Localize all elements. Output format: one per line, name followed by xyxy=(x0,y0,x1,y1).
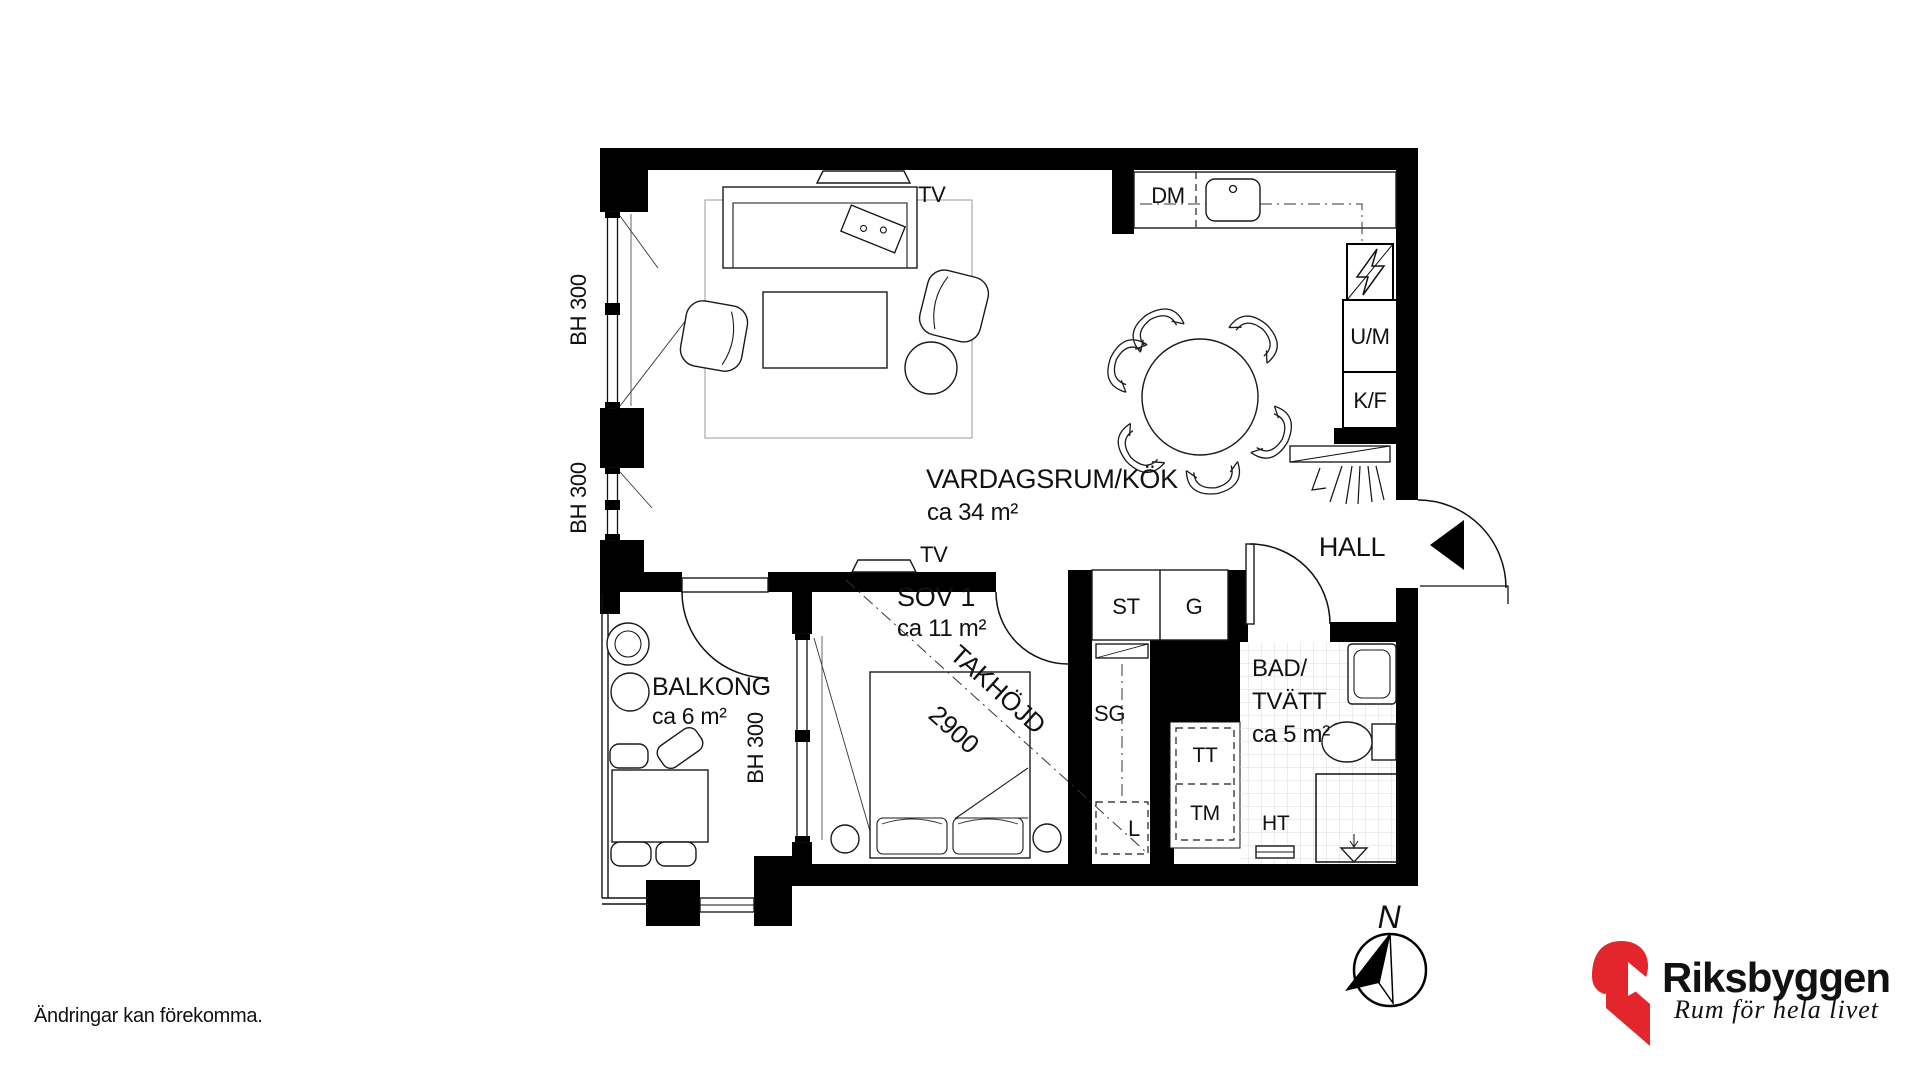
bedroom-area: ca 11 m² xyxy=(897,615,986,642)
balcony-table xyxy=(612,770,708,842)
riksbyggen-logo: Riksbyggen Rum för hela livet xyxy=(1592,941,1890,1046)
logo-tagline: Rum för hela livet xyxy=(1673,995,1879,1024)
logo-brand-text: Riksbyggen xyxy=(1662,954,1890,1001)
tv-wall-bedroom xyxy=(852,560,916,572)
bedroom-door xyxy=(996,592,1068,664)
living-room-furniture: TV xyxy=(678,171,992,438)
laundry-appliances: TT TM xyxy=(1170,722,1240,848)
bathroom-label-2: TVÄTT xyxy=(1252,688,1327,715)
hanger-icon xyxy=(1312,466,1384,504)
bathroom-area: ca 5 m² xyxy=(1252,721,1330,748)
closet-sg-label: SG xyxy=(1094,701,1125,726)
dishwasher-label: DM xyxy=(1151,183,1185,208)
sofa xyxy=(723,187,917,268)
window-bedroom xyxy=(795,634,872,842)
closet-l-label: L xyxy=(1128,816,1140,841)
tv-bedroom-label: TV xyxy=(920,542,948,567)
window-height-upper: BH 300 xyxy=(566,274,591,346)
floorplan-page: U/M K/F DM TV xyxy=(0,0,1920,1080)
balcony-chair xyxy=(610,744,648,768)
bedroom-label: SOV 1 xyxy=(897,582,975,612)
tv-wall-living xyxy=(817,171,910,183)
washer-label: TM xyxy=(1190,802,1220,825)
armchair-right xyxy=(916,266,992,345)
armchair-left xyxy=(678,298,751,374)
living-room-label: VARDAGSRUM/KÖK xyxy=(926,464,1178,494)
tv-living-label: TV xyxy=(918,182,946,207)
appliance-fridge-freezer: K/F xyxy=(1343,372,1397,428)
electrical-cabinet xyxy=(1347,244,1393,300)
entrance-arrow-icon xyxy=(1430,520,1464,570)
hall-label: HALL xyxy=(1319,532,1386,562)
bathroom-door xyxy=(1246,544,1330,624)
side-table xyxy=(905,342,957,394)
bedside-table xyxy=(831,825,859,853)
closet-st-label: ST xyxy=(1112,594,1140,619)
washbasin xyxy=(1348,644,1396,704)
fridge-freezer-label: K/F xyxy=(1353,388,1386,413)
dining-chair xyxy=(1186,461,1243,498)
plant-pot xyxy=(611,673,649,711)
living-room-area: ca 34 m² xyxy=(927,499,1018,526)
towel-rail-label: HT xyxy=(1262,812,1290,835)
disclaimer-text: Ändringar kan förekomma. xyxy=(34,1005,262,1027)
bathroom: BAD/ TVÄTT ca 5 m² HT xyxy=(1240,642,1398,864)
balcony-door xyxy=(682,578,768,678)
dryer-label: TT xyxy=(1192,744,1218,767)
coat-rack xyxy=(1290,446,1390,504)
plant-pot xyxy=(607,623,649,665)
appliance-oven-micro: U/M xyxy=(1343,300,1397,372)
floorplan-drawing: U/M K/F DM TV xyxy=(0,0,1920,1080)
entrance-door xyxy=(1418,500,1508,604)
linen-closet xyxy=(1096,802,1148,854)
bedside-table xyxy=(1033,824,1061,852)
balcony-chair xyxy=(654,724,707,772)
north-label: N xyxy=(1378,899,1402,935)
balcony-area: ca 6 m² xyxy=(652,703,727,729)
towel-rail xyxy=(1256,846,1294,858)
window-facade-lower xyxy=(605,468,652,540)
closet-g-label: G xyxy=(1186,594,1203,619)
bathroom-label-1: BAD/ xyxy=(1252,655,1307,682)
balcony-label: BALKONG xyxy=(652,673,771,701)
compass: N xyxy=(1345,899,1426,1006)
window-height-lower: BH 300 xyxy=(566,462,591,534)
dining-chair xyxy=(1100,333,1147,393)
window-height-bedroom: BH 300 xyxy=(743,712,768,784)
oven-micro-label: U/M xyxy=(1350,324,1389,349)
window-facade-upper xyxy=(605,212,700,408)
toilet xyxy=(1322,722,1396,762)
balcony-chair xyxy=(611,842,651,866)
coffee-table xyxy=(763,292,887,368)
balcony-chair xyxy=(656,842,696,866)
dining-chair xyxy=(1251,406,1300,466)
